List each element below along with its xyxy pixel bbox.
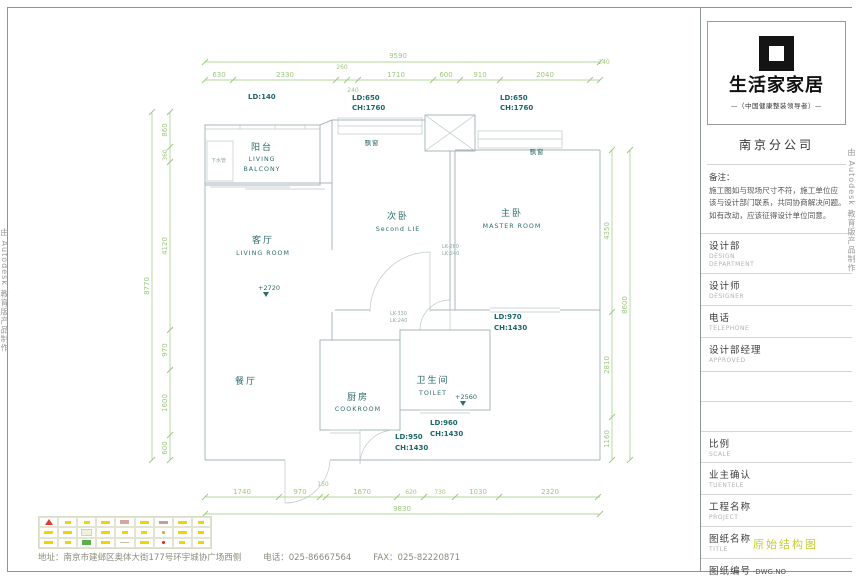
legend-cell [58,527,77,537]
field-design-manager: 设计部经理 APPROVED [701,337,852,371]
legend-cell [39,538,58,548]
dim-left-0: 860 [161,123,169,136]
field-sheet-name: 图纸名称 TITLE 原始结构图 [701,526,852,558]
legend-cell [96,517,115,527]
company-logo-icon [759,36,794,71]
branch-name: 南京分公司 [701,136,852,153]
company-address: 地址：南京市建邺区奥体大街177号环宇城协广场西侧 [38,551,241,563]
legend-cell [58,538,77,548]
dim-left-1: 360 [162,149,169,161]
field-empty-1 [701,371,852,401]
legend-cell [173,517,192,527]
autodesk-watermark-left: 由 Autodesk 教育版产品制作 [0,228,10,378]
brand-tagline: —（中国健康整装领导者）— [731,100,822,110]
field-label: 比例 [709,436,844,450]
field-label: 工程名称 [709,499,844,513]
field-sublabel: APPROVED [709,357,769,365]
dim-top-2: 260 [336,64,348,71]
legend-cell [173,538,192,548]
divider [707,164,846,165]
dim-top-4: 1710 [387,71,405,79]
legend-cell [115,517,134,527]
company-logo-box: 生活家家居 —（中国健康整装领导者）— [707,21,846,125]
ld140-label: LD:140 [248,93,276,101]
dim-left-total: 8770 [143,109,155,463]
field-design-department: 设计部 DESIGN DEPARTMENT [701,233,852,273]
window-corridor-ch: CH:1430 [494,324,527,332]
dim-right-2: 1160 [603,430,611,448]
title-block-panel: 生活家家居 —（中国健康整装领导者）— 南京分公司 备注： 施工图如与现场尺寸不… [701,8,852,571]
dim-top-1: 2330 [276,71,294,79]
door-toilet-code-1: LK-330 [390,311,407,317]
dim-left-2: 4120 [161,237,169,255]
room-balcony-en2: BALCONY [243,166,280,173]
dim-left-segments: 860 360 4120 970 1600 600 [161,109,173,463]
dim-right-1: 2810 [603,356,611,374]
dim-left-4: 1600 [161,394,169,412]
field-label: 电话 [709,310,844,324]
dim-bottom-7: 2320 [541,488,559,496]
dim-bottom-total: 9830 [202,505,603,517]
room-labels: 阳台 LIVING BALCONY 下水管 飘窗 飘窗 客厅 LIVING RO… [211,138,544,413]
room-living-en: LIVING ROOM [236,250,290,257]
window-kitchen-ld: LD:950 [395,433,423,441]
dim-top-6: 910 [473,71,486,79]
legend-cell [154,527,173,537]
dim-bottom-6: 1030 [469,488,487,496]
dim-top-5: 600 [439,71,452,79]
legend-cell [154,538,173,548]
remark-line-3: 如有改动，应该征得设计单位同意。 [709,210,847,222]
field-drawing-number: 图纸编号 ·DWG.NO [701,558,852,578]
window-second-ch: CH:1760 [352,104,385,112]
window-second-ld: LD:650 [352,94,380,102]
legend-cell [173,527,192,537]
room-second-en: Second LIE [376,226,421,233]
dim-top-3: 240 [347,87,359,94]
dim-right-total-text: 8600 [621,296,629,314]
legend-table [38,516,212,549]
dim-bottom-5: 730 [434,489,446,496]
field-designer: 设计师 DESIGNER [701,273,852,305]
living-level-triangle [263,292,269,297]
field-label: 图纸编号 [709,563,751,577]
dim-top-total-text: 9590 [389,52,407,60]
autodesk-watermark-right: 由 Autodesk 教育版产品制作 [846,148,857,363]
room-kitchen-zh: 厨房 [347,391,369,403]
field-sublabel: TELEPHONE [709,325,769,333]
toilet-level-triangle [460,401,466,406]
field-empty-2 [701,401,852,431]
legend-cell [135,538,154,548]
legend-cell [77,527,96,537]
toilet-level-mark: +2560 [455,393,477,401]
field-sublabel: SCALE [709,451,769,459]
dim-top-7: 2040 [536,71,554,79]
field-label: 业主确认 [709,467,844,481]
legend-cell [192,517,211,527]
remark-line-1: 施工图如与现场尺寸不符，施工单位应 [709,185,847,197]
legend-cell [77,538,96,548]
dim-top-total: 9590 [202,52,603,65]
dim-bottom-3: 1670 [353,488,371,496]
field-label: 设计师 [709,278,844,292]
field-scale: 比例 SCALE [701,431,852,462]
field-project-name: 工程名称 PROJECT [701,494,852,526]
remark-title: 备注： [709,171,847,183]
window-master-ld: LD:650 [500,94,528,102]
company-fax: FAX：025-82220871 [373,551,460,563]
bay-window-1-label: 飘窗 [365,138,380,147]
window-corridor-ld: LD:970 [494,313,522,321]
living-level-mark: +2720 [258,284,280,292]
opening-labels: LD:140 LD:650 CH:1760 LD:650 CH:1760 LK-… [248,93,533,452]
dim-bottom-total-text: 9830 [393,505,411,513]
drain-pipe-label: 下水管 [211,157,226,164]
room-dining-zh: 餐厅 [235,375,257,387]
field-sublabel: TUENTELE [709,482,769,490]
dim-bottom-4: 620 [405,489,417,496]
legend-cell [135,517,154,527]
dim-right-segments: 4350 2810 1160 [603,147,615,463]
legend-cell [115,527,134,537]
field-sublabel: PROJECT [709,514,769,522]
remark-line-2: 该与设计部门联系，共同协商解决问题。 [709,197,847,209]
field-sublabel: DESIGN DEPARTMENT [709,253,769,269]
room-balcony-zh: 阳台 [251,141,273,153]
dim-left-total-text: 8770 [143,277,151,295]
room-living-zh: 客厅 [252,234,274,246]
legend-cell [77,517,96,527]
legend-cell [135,527,154,537]
window-kitchen-ch: CH:1430 [395,444,428,452]
door-master-code-1: LK-260 [442,244,459,250]
window-toilet-ld: LD:960 [430,419,458,427]
company-phone: 电话：025-86667564 [263,551,351,563]
room-toilet-zh: 卫生间 [416,374,449,386]
field-sublabel: DESIGNER [709,293,769,301]
dim-bottom-0: 1740 [233,488,251,496]
dim-right-total: 8600 [621,147,633,463]
legend-cell [115,538,134,548]
legend-cell [96,538,115,548]
door-master-code-2: LK:240 [442,251,459,257]
dim-top-0: 630 [212,71,225,79]
dim-top-8: 240 [598,59,610,66]
room-second-zh: 次卧 [387,210,409,222]
room-balcony-en1: LIVING [248,156,275,163]
dim-bottom-segments: 1740 970 150 1670 620 730 1030 2320 [202,481,601,500]
window-toilet-ch: CH:1430 [430,430,463,438]
legend-cell [39,517,58,527]
room-master-en: MASTER ROOM [483,223,542,230]
field-client-confirm: 业主确认 TUENTELE [701,462,852,494]
legend-cell [192,538,211,548]
dim-left-5: 600 [161,441,169,454]
remark-block: 备注： 施工图如与现场尺寸不符，施工单位应 该与设计部门联系，共同协商解决问题。… [709,171,847,222]
window-master-ch: CH:1760 [500,104,533,112]
room-kitchen-en: COOKROOM [335,406,381,413]
title-block-fields: 设计部 DESIGN DEPARTMENT 设计师 DESIGNER 电话 TE… [701,233,852,578]
legend-cell [192,527,211,537]
legend-cell [96,527,115,537]
room-master-zh: 主卧 [501,207,523,219]
legend-cell [154,517,173,527]
dim-top-segments: 630 2330 260 240 1710 600 910 2040 240 [202,59,610,94]
dim-bottom-2: 150 [317,481,329,488]
field-telephone: 电话 TELEPHONE [701,305,852,337]
legend-cell [58,517,77,527]
room-toilet-en: TOILET [418,390,447,397]
legend-cell [39,527,58,537]
footer-contact-bar: 地址：南京市建邺区奥体大街177号环宇城协广场西侧 电话：025-8666756… [38,551,658,563]
brand-name: 生活家家居 [729,77,824,95]
door-toilet-code-2: LK:240 [390,318,407,324]
field-label: 设计部 [709,238,844,252]
sheet-title-value: 原始结构图 [753,536,818,552]
field-label: 设计部经理 [709,342,844,356]
dim-left-3: 970 [161,343,169,356]
dim-bottom-1: 970 [293,488,306,496]
dim-right-0: 4350 [603,222,611,240]
bay-window-2-label: 飘窗 [530,147,545,156]
field-sublabel: ·DWG.NO [753,568,786,576]
